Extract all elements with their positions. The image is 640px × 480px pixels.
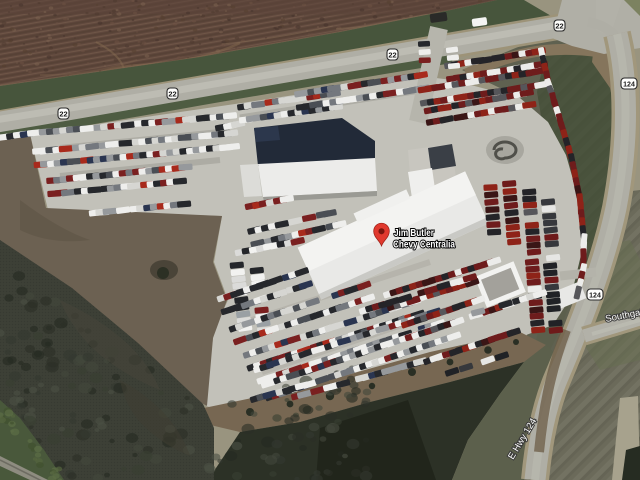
svg-text:22: 22 [59,110,67,119]
svg-text:124: 124 [623,82,635,89]
svg-text:22: 22 [168,90,176,99]
svg-text:Chevy Centralia: Chevy Centralia [393,240,455,251]
svg-text:22: 22 [555,22,563,31]
svg-text:22: 22 [388,51,396,60]
svg-text:Jim Butler: Jim Butler [394,228,434,239]
svg-text:124: 124 [589,293,601,300]
